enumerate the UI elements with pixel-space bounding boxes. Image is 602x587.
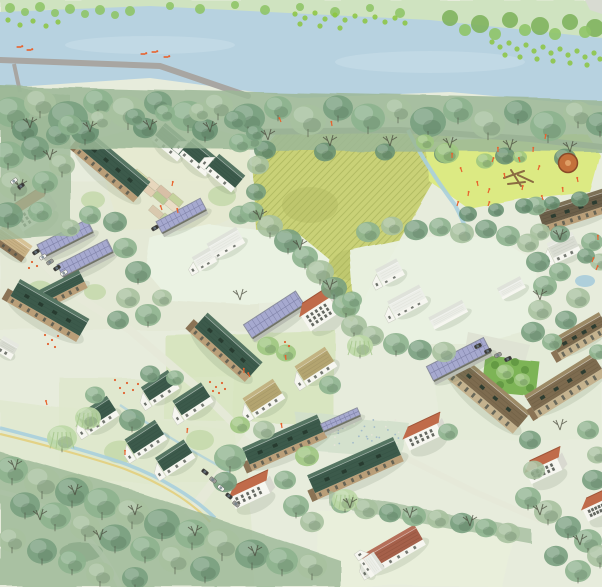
wildflower-speck bbox=[395, 419, 397, 421]
flower-dot bbox=[47, 343, 49, 345]
canopy-shade bbox=[417, 349, 429, 359]
canopy-shade bbox=[505, 532, 517, 542]
wildflower-speck bbox=[364, 425, 366, 427]
flower-dot bbox=[119, 387, 121, 389]
lily-pad bbox=[372, 14, 377, 19]
canopy-shade bbox=[111, 536, 127, 549]
canopy-shade bbox=[549, 341, 559, 349]
canopy-shade bbox=[394, 108, 408, 119]
wildflower-speck bbox=[334, 436, 336, 438]
canopy-shade bbox=[55, 134, 67, 144]
canopy-shade bbox=[197, 111, 208, 120]
canopy-shade bbox=[278, 559, 294, 572]
lily-pad bbox=[550, 58, 555, 63]
canopy-shade bbox=[537, 309, 549, 319]
tree bbox=[230, 417, 250, 434]
tree bbox=[155, 105, 175, 122]
lily-pad bbox=[565, 52, 570, 57]
tree bbox=[247, 156, 269, 175]
wildflower-speck bbox=[398, 437, 400, 439]
bank-bush bbox=[95, 5, 105, 15]
lily-pad bbox=[574, 48, 579, 53]
circle bbox=[21, 45, 23, 47]
flower-dot bbox=[221, 382, 223, 384]
tree bbox=[521, 322, 545, 342]
canopy-shade bbox=[365, 231, 377, 241]
canopy-shade bbox=[237, 142, 248, 151]
canopy-shade bbox=[411, 515, 423, 525]
tree bbox=[107, 311, 129, 330]
lily-pad bbox=[17, 22, 22, 27]
lily-pad bbox=[517, 54, 522, 59]
tree bbox=[166, 370, 184, 385]
canopy-shade bbox=[122, 247, 134, 257]
masterplan-canvas bbox=[0, 0, 602, 587]
wildflower-speck bbox=[371, 434, 373, 436]
bank-bush bbox=[579, 26, 591, 38]
lawn-circle bbox=[186, 430, 214, 450]
person-body bbox=[522, 187, 523, 190]
tree bbox=[152, 290, 172, 307]
tree bbox=[514, 373, 530, 387]
person-body bbox=[46, 402, 47, 405]
canopy-shade bbox=[483, 228, 494, 237]
tree bbox=[58, 115, 82, 135]
lily-pad bbox=[342, 17, 347, 22]
bank-bush bbox=[366, 4, 374, 12]
canopy-shade bbox=[8, 538, 22, 549]
canopy-shade bbox=[445, 431, 455, 439]
canopy-shade bbox=[252, 132, 261, 139]
flower-dot bbox=[54, 346, 56, 348]
tree bbox=[528, 300, 552, 320]
canopy-shade bbox=[544, 510, 558, 521]
tree bbox=[28, 202, 52, 222]
flower-dot bbox=[57, 335, 59, 337]
flower-dot bbox=[284, 341, 286, 343]
flower-dot bbox=[44, 334, 46, 336]
tree bbox=[544, 196, 560, 210]
canopy-shade bbox=[537, 231, 547, 239]
lily-pad bbox=[591, 50, 596, 55]
canopy-shade bbox=[308, 564, 323, 576]
tree bbox=[435, 143, 459, 163]
field-shade bbox=[282, 187, 338, 223]
lily-pad bbox=[297, 21, 302, 26]
tree bbox=[300, 512, 324, 532]
canopy-shade bbox=[147, 373, 157, 381]
canopy-shade bbox=[454, 108, 469, 120]
canopy-shade bbox=[37, 480, 55, 494]
canopy-shade bbox=[483, 527, 494, 536]
canopy-shade bbox=[21, 503, 36, 515]
wildflower-speck bbox=[361, 430, 363, 432]
canopy-shade bbox=[128, 418, 141, 428]
tree bbox=[246, 125, 264, 140]
canopy-shade bbox=[327, 384, 338, 393]
canopy-shade bbox=[435, 518, 446, 527]
hut-roof-top bbox=[565, 160, 571, 166]
lily-pad bbox=[523, 42, 528, 47]
tree bbox=[416, 134, 434, 149]
lily-pad bbox=[55, 19, 60, 24]
tree bbox=[140, 366, 160, 383]
lily-pad bbox=[514, 46, 519, 51]
canopy-shade bbox=[134, 270, 147, 280]
tree bbox=[530, 224, 550, 241]
canopy-shade bbox=[96, 572, 110, 583]
lily-pad bbox=[352, 13, 357, 18]
tree bbox=[314, 143, 336, 162]
canopy-shade bbox=[502, 371, 511, 378]
lily-pad bbox=[506, 40, 511, 45]
canopy-shade bbox=[217, 542, 235, 556]
lily-pad bbox=[540, 44, 545, 49]
lily-pad bbox=[5, 17, 10, 22]
tree bbox=[89, 111, 111, 130]
canopy-shade bbox=[37, 211, 49, 221]
canopy-shade bbox=[413, 229, 425, 239]
canopy-shade bbox=[51, 514, 67, 527]
tree bbox=[427, 510, 449, 529]
circle bbox=[31, 48, 33, 50]
pond bbox=[575, 275, 595, 287]
wildflower-speck bbox=[352, 442, 354, 444]
lily-pad bbox=[337, 25, 342, 30]
tree bbox=[515, 198, 533, 213]
canopy-shade bbox=[226, 456, 242, 469]
tree bbox=[116, 288, 140, 308]
canopy-shade bbox=[58, 436, 73, 448]
tree bbox=[342, 292, 362, 309]
wildflower-speck bbox=[371, 440, 373, 442]
canopy-shade bbox=[41, 180, 54, 190]
wildflower-speck bbox=[396, 442, 398, 444]
canopy-shade bbox=[97, 501, 115, 515]
flower-dot bbox=[123, 392, 125, 394]
tree bbox=[60, 220, 80, 237]
tree bbox=[571, 191, 589, 206]
canopy-shade bbox=[589, 241, 600, 250]
canopy-shade bbox=[112, 221, 124, 231]
canopy-shade bbox=[363, 508, 375, 518]
canopy-shade bbox=[304, 455, 316, 465]
lily-pad bbox=[30, 18, 35, 23]
water-highlight bbox=[65, 36, 235, 54]
canopy-shade bbox=[157, 522, 175, 536]
lily-pad bbox=[534, 56, 539, 61]
tree bbox=[475, 519, 497, 538]
person-body bbox=[331, 123, 332, 126]
bank-bush bbox=[21, 8, 29, 16]
canopy-shade bbox=[125, 297, 137, 307]
lily-pad bbox=[332, 12, 337, 17]
tree bbox=[79, 206, 101, 225]
bank-bush bbox=[442, 10, 458, 26]
canopy-shade bbox=[94, 100, 109, 112]
flower-dot bbox=[36, 265, 38, 267]
lily-pad bbox=[322, 16, 327, 21]
tree bbox=[274, 471, 296, 490]
canopy-shade bbox=[8, 468, 24, 481]
lily-pad bbox=[312, 10, 317, 15]
canopy-shade bbox=[67, 227, 77, 235]
bank-bush bbox=[166, 2, 174, 10]
lily-pad bbox=[392, 15, 397, 20]
canopy-shade bbox=[535, 261, 547, 271]
bank-bush bbox=[471, 15, 489, 33]
lily-pad bbox=[584, 62, 589, 67]
canopy-shade bbox=[282, 479, 293, 488]
bank-bush bbox=[296, 3, 304, 11]
tree bbox=[519, 431, 541, 450]
canopy-shade bbox=[97, 119, 108, 128]
flower-dot bbox=[51, 339, 53, 341]
canopy-shade bbox=[389, 225, 400, 234]
bank-bush bbox=[65, 4, 75, 14]
circle bbox=[145, 52, 147, 54]
canopy-shade bbox=[67, 124, 79, 134]
canopy-shade bbox=[444, 152, 456, 162]
canopy-shade bbox=[36, 101, 52, 114]
canopy-shade bbox=[349, 299, 359, 307]
bank-bush bbox=[459, 24, 471, 36]
bank-bush bbox=[5, 3, 15, 13]
canopy-shade bbox=[422, 141, 431, 148]
tree bbox=[356, 222, 380, 242]
bank-bush bbox=[531, 17, 549, 35]
bank-bush bbox=[125, 6, 135, 16]
flower-dot bbox=[132, 389, 134, 391]
canopy-shade bbox=[309, 521, 321, 531]
canopy-shade bbox=[38, 549, 53, 561]
tree bbox=[523, 461, 545, 480]
lily-pad bbox=[489, 39, 494, 44]
canopy-shade bbox=[303, 118, 321, 132]
canopy-shade bbox=[531, 469, 542, 478]
tree bbox=[476, 153, 494, 168]
tree bbox=[213, 472, 237, 492]
canopy-shade bbox=[84, 416, 97, 426]
flower-dot bbox=[126, 382, 128, 384]
bank-bush bbox=[81, 10, 89, 18]
canopy-shade bbox=[142, 127, 154, 137]
wildflower-speck bbox=[366, 436, 368, 438]
flower-dot bbox=[137, 383, 139, 385]
canopy-shade bbox=[162, 112, 172, 120]
lily-pad bbox=[582, 54, 587, 59]
wildflower-speck bbox=[334, 444, 336, 446]
tree bbox=[113, 238, 137, 258]
lily-pad bbox=[502, 52, 507, 57]
orchard-tree bbox=[511, 358, 519, 366]
canopy-shade bbox=[201, 128, 214, 138]
wildflower-speck bbox=[376, 436, 378, 438]
canopy-shade bbox=[115, 319, 126, 328]
canopy-shade bbox=[530, 331, 542, 341]
canopy-shade bbox=[577, 198, 586, 205]
tree bbox=[189, 103, 211, 122]
tree bbox=[402, 506, 426, 526]
tree bbox=[566, 288, 590, 308]
canopy-shade bbox=[237, 424, 247, 432]
canopy-shade bbox=[292, 504, 305, 514]
flower-dot bbox=[31, 261, 33, 263]
person-body bbox=[519, 159, 520, 162]
canopy-shade bbox=[81, 130, 95, 141]
tree bbox=[224, 111, 246, 130]
tree bbox=[475, 220, 497, 239]
flower-dot bbox=[224, 388, 226, 390]
bank-bush bbox=[489, 28, 501, 40]
tree bbox=[295, 446, 319, 466]
person-head bbox=[124, 450, 126, 452]
lily-pad bbox=[548, 50, 553, 55]
canopy-shade bbox=[31, 146, 45, 157]
canopy-shade bbox=[131, 576, 144, 586]
wildflower-speck bbox=[373, 426, 375, 428]
canopy-shade bbox=[441, 351, 453, 361]
tree bbox=[438, 424, 458, 441]
circle bbox=[156, 50, 158, 52]
bank-bush bbox=[195, 4, 205, 14]
person-body bbox=[281, 425, 282, 428]
tree bbox=[404, 220, 428, 240]
canopy-shade bbox=[132, 116, 142, 124]
canopy-shade bbox=[159, 297, 169, 305]
canopy-shade bbox=[533, 205, 544, 214]
canopy-shade bbox=[527, 439, 538, 448]
tree bbox=[577, 421, 599, 440]
canopy-shade bbox=[363, 116, 380, 130]
canopy-shade bbox=[494, 209, 502, 215]
lily-pad bbox=[531, 48, 536, 53]
person-body bbox=[177, 210, 178, 213]
canopy-shade bbox=[4, 153, 20, 166]
flower-dot bbox=[114, 379, 116, 381]
tree bbox=[496, 364, 514, 379]
lily-pad bbox=[317, 23, 322, 28]
wildflower-speck bbox=[338, 443, 340, 445]
canopy-shade bbox=[68, 560, 82, 571]
tree bbox=[555, 311, 577, 330]
canopy-shade bbox=[255, 164, 266, 173]
canopy-shade bbox=[525, 242, 536, 251]
lily-pad bbox=[292, 11, 297, 16]
canopy-shade bbox=[483, 122, 500, 136]
canopy-shade bbox=[261, 429, 272, 438]
canopy-shade bbox=[4, 213, 19, 225]
bank-bush bbox=[549, 28, 561, 40]
tree bbox=[408, 340, 432, 360]
wildflower-speck bbox=[394, 434, 396, 436]
canopy-shade bbox=[141, 547, 156, 559]
tree bbox=[253, 421, 275, 440]
lily-pad bbox=[402, 20, 407, 25]
canopy-shade bbox=[171, 557, 187, 570]
canopy-shade bbox=[172, 377, 181, 384]
tree bbox=[429, 218, 451, 237]
canopy-shade bbox=[92, 394, 102, 402]
canopy-shade bbox=[575, 297, 587, 307]
canopy-shade bbox=[553, 555, 565, 565]
canopy-shade bbox=[482, 160, 491, 167]
canopy-shade bbox=[334, 106, 349, 118]
bank-bush bbox=[260, 5, 270, 15]
tree bbox=[542, 334, 562, 351]
tree bbox=[432, 342, 456, 362]
canopy-shade bbox=[322, 151, 333, 160]
wildflower-speck bbox=[372, 419, 374, 421]
canopy-shade bbox=[265, 345, 276, 354]
canopy-shade bbox=[563, 319, 574, 328]
canopy-shade bbox=[564, 525, 577, 535]
masterplan-illustration bbox=[0, 0, 602, 587]
tree bbox=[488, 203, 504, 217]
canopy-shade bbox=[502, 155, 512, 163]
lily-pad bbox=[302, 15, 307, 20]
tree bbox=[544, 546, 568, 566]
canopy-shade bbox=[387, 512, 398, 521]
bank-bush bbox=[111, 11, 119, 19]
flower-dot bbox=[218, 392, 220, 394]
tree bbox=[496, 226, 520, 246]
flower-dot bbox=[288, 345, 290, 347]
tree bbox=[526, 252, 550, 272]
flower-dot bbox=[215, 386, 217, 388]
lily-pad bbox=[43, 23, 48, 28]
canopy-shade bbox=[557, 271, 568, 280]
tree bbox=[375, 144, 395, 161]
bank-bush bbox=[562, 14, 578, 30]
flower-dot bbox=[209, 381, 211, 383]
canopy-shade bbox=[465, 213, 474, 220]
flower-dot bbox=[28, 267, 30, 269]
tree bbox=[450, 223, 474, 243]
lily-pad bbox=[497, 44, 502, 49]
canopy-shade bbox=[87, 214, 98, 223]
meadow-hut bbox=[559, 154, 578, 173]
canopy-shade bbox=[521, 205, 530, 212]
bank-bush bbox=[35, 2, 45, 12]
tree bbox=[319, 376, 341, 395]
canopy-shade bbox=[524, 496, 537, 506]
tree bbox=[379, 504, 401, 523]
canopy-shade bbox=[232, 119, 243, 128]
wildflower-speck bbox=[358, 435, 360, 437]
canopy-shade bbox=[382, 151, 392, 159]
wildflower-speck bbox=[385, 426, 387, 428]
tree bbox=[459, 206, 477, 221]
canopy-shade bbox=[437, 226, 448, 235]
orchard-tree bbox=[521, 366, 529, 374]
tree bbox=[103, 212, 127, 232]
bank-bush bbox=[51, 9, 59, 17]
flower-dot bbox=[212, 390, 214, 392]
person-body bbox=[468, 193, 469, 196]
wildflower-speck bbox=[367, 438, 369, 440]
person-body bbox=[545, 136, 546, 139]
canopy-shade bbox=[514, 110, 528, 121]
canopy-shade bbox=[392, 342, 405, 352]
canopy-shade bbox=[583, 255, 592, 262]
canopy-shade bbox=[423, 120, 441, 134]
canopy-shade bbox=[201, 567, 216, 579]
canopy-shade bbox=[585, 429, 596, 438]
person-body bbox=[172, 183, 173, 186]
canopy-shade bbox=[253, 191, 263, 199]
wildflower-speck bbox=[398, 431, 400, 433]
